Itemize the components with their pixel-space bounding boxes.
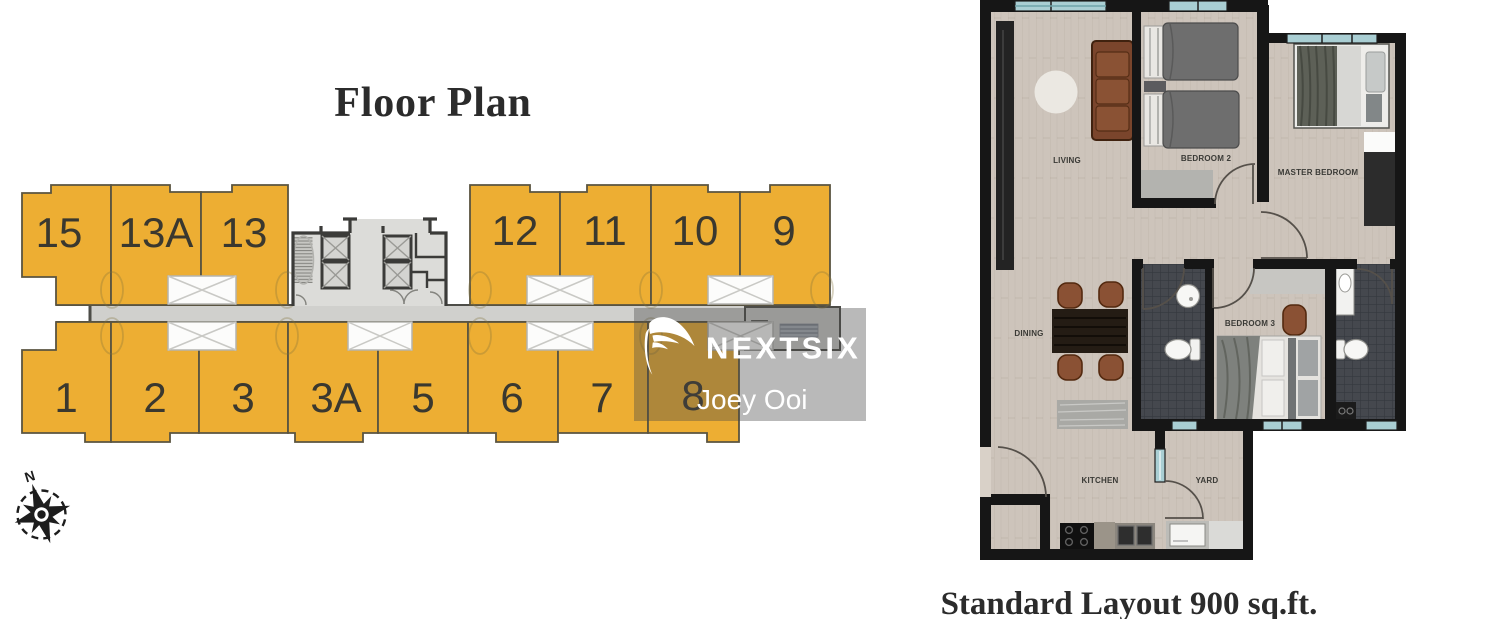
svg-text:13: 13 <box>221 209 268 256</box>
svg-text:DINING: DINING <box>1014 329 1043 338</box>
svg-text:BEDROOM 2: BEDROOM 2 <box>1181 154 1232 163</box>
svg-text:13A: 13A <box>119 209 194 256</box>
svg-text:LIVING: LIVING <box>1053 156 1081 165</box>
svg-text:5: 5 <box>411 374 434 421</box>
svg-text:Joey Ooi: Joey Ooi <box>697 384 808 415</box>
svg-text:Floor Plan: Floor Plan <box>334 80 531 126</box>
svg-text:15: 15 <box>36 209 83 256</box>
svg-text:9: 9 <box>772 207 795 254</box>
svg-text:BEDROOM 3: BEDROOM 3 <box>1225 319 1276 328</box>
svg-text:6: 6 <box>500 374 523 421</box>
svg-text:Standard Layout 900 sq.ft.: Standard Layout 900 sq.ft. <box>941 586 1318 619</box>
svg-text:3: 3 <box>231 374 254 421</box>
svg-text:3A: 3A <box>310 374 361 421</box>
svg-text:MASTER BEDROOM: MASTER BEDROOM <box>1278 168 1359 177</box>
svg-text:KITCHEN: KITCHEN <box>1082 476 1119 485</box>
svg-text:12: 12 <box>492 207 539 254</box>
svg-text:1: 1 <box>54 374 77 421</box>
svg-text:11: 11 <box>583 207 627 254</box>
svg-text:10: 10 <box>672 207 719 254</box>
svg-text:NEXTSIX: NEXTSIX <box>706 331 861 366</box>
svg-text:YARD: YARD <box>1196 476 1219 485</box>
svg-text:2: 2 <box>143 374 166 421</box>
svg-text:7: 7 <box>590 374 613 421</box>
